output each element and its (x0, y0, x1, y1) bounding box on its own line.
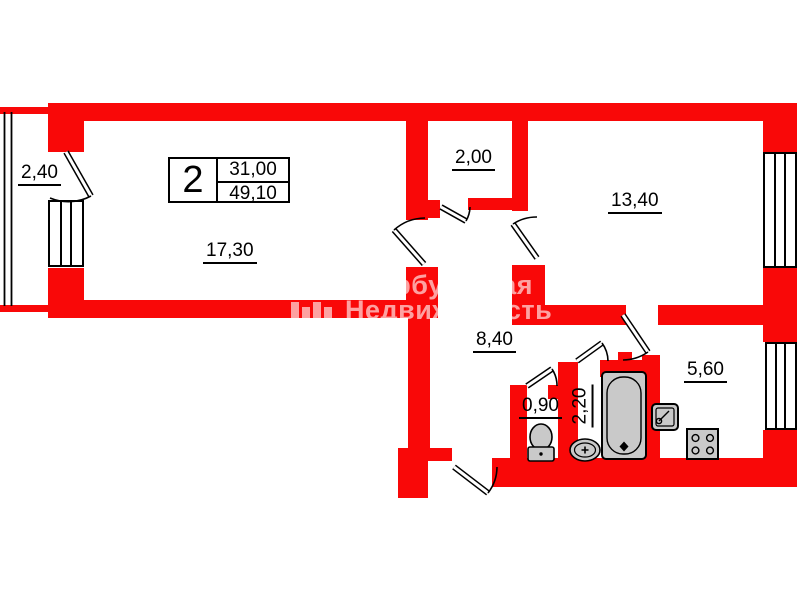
wall-storage-bottom-left (428, 200, 440, 218)
wall-right-top (763, 103, 797, 152)
wall-bath-top-notch (618, 352, 632, 362)
label-wc-area: 0,90 (519, 396, 562, 419)
balcony-edge-top (0, 107, 48, 114)
window-balcony (48, 200, 84, 267)
watermark-line2-text: Недвижимость (345, 295, 552, 326)
floor-plan: Петербургская Недвижимость (0, 0, 800, 600)
window-bedroom (763, 152, 797, 268)
storage-door (441, 207, 470, 221)
wall-bath-top (600, 360, 648, 377)
label-living-area: 17,30 (203, 241, 257, 264)
wall-storage-right (512, 121, 528, 211)
wc-door (527, 369, 557, 386)
wall-top (48, 103, 797, 121)
wall-storage-bottom-right (468, 198, 512, 210)
wall-right-bottom (763, 430, 797, 487)
title-block: 2 31,00 49,10 (168, 157, 290, 203)
label-hallway-area: 8,40 (473, 330, 516, 353)
wall-entrance-ledge (428, 448, 452, 461)
entrance-door (454, 467, 497, 493)
watermark-line2: Недвижимость (291, 295, 552, 326)
wall-hall-left-lower (408, 318, 430, 460)
wall-hall-left-upper (406, 121, 428, 220)
label-bathroom-area: 2,20 (571, 385, 594, 428)
balcony-outline (5, 112, 12, 306)
watermark-logo-icon (291, 299, 337, 323)
living-room-door (394, 218, 425, 264)
bathtub (602, 372, 646, 459)
bathroom-door (577, 343, 608, 361)
balcony-edge-bottom (0, 305, 48, 312)
wall-entrance-left-jamb (398, 448, 428, 498)
wall-bath-kitchen-divider (642, 355, 660, 460)
wall-bedroom-bottom-right (658, 305, 763, 325)
wall-bottom (492, 458, 795, 487)
wall-right-mid (763, 268, 797, 342)
label-balcony-area: 2,40 (18, 163, 61, 186)
toilet (528, 424, 554, 461)
room-count: 2 (170, 159, 218, 201)
stove (687, 429, 718, 459)
living-area-total: 31,00 (218, 159, 288, 183)
label-storage-area: 2,00 (452, 148, 495, 171)
label-kitchen-area: 5,60 (684, 360, 727, 383)
bedroom-door (513, 217, 537, 258)
wall-left-top-pillar (48, 103, 84, 152)
label-bedroom-area: 13,40 (608, 191, 662, 214)
window-kitchen (765, 342, 797, 430)
apartment-area-total: 49,10 (218, 183, 288, 205)
